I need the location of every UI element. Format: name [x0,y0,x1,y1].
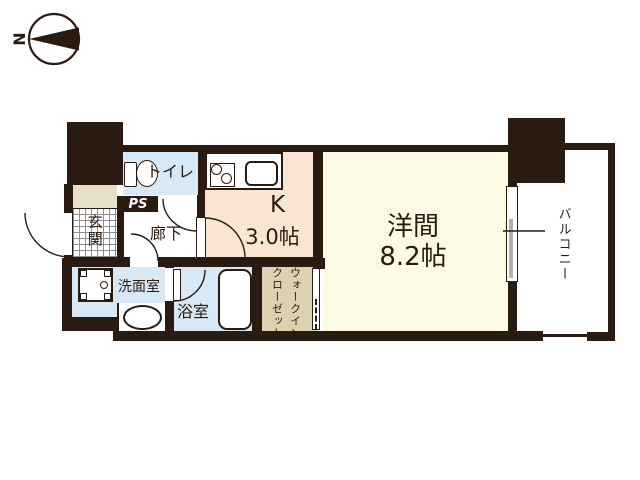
washer-corner-3 [80,293,87,300]
balcony-label: バルコニー [556,207,570,293]
pipe-space-box: PS [118,196,158,212]
kitchen-size-label: 3.0帖 [235,226,310,248]
closet-label-line1: ウォークイン [289,267,301,331]
entrance-door-arc [25,213,69,257]
bathtub [218,269,252,330]
entrance-label: 玄関 [86,214,102,258]
wall-top-left-block [67,122,123,185]
kitchen-label: K [250,193,305,217]
washroom-label: 洗面室 [110,280,168,295]
wall-right-above-window [508,152,517,187]
north-compass: N [0,0,100,80]
kitchen-sink [245,161,278,186]
main-room-label: 洋間 [353,214,473,241]
wall-above-kitchen-door [197,195,205,218]
washer-corner-1 [80,270,87,277]
compass-needle-icon [29,28,79,51]
washroom-door-opening [130,257,158,267]
wall-entrance-left-upper [64,184,73,213]
bathroom-label: 浴室 [172,304,214,321]
wall-balcony-right [608,143,615,341]
floor-plan: PS トイレ 玄関 廊下 K 3.0帖 洋間 8.2帖 洗面室 浴室 ウォークイ… [0,0,640,480]
closet-label-line2: クローゼット [271,267,283,331]
wash-basin [123,305,162,330]
wall-balcony-bottom-corner [587,332,615,341]
stove-burner-1 [211,164,222,175]
wall-bottom-main [113,331,543,341]
main-room-size-label: 8.2帖 [353,244,473,271]
compass-circle [29,14,79,64]
washer-corner-2 [104,270,111,277]
wall-bathroom-closet [252,258,262,331]
hallway-label: 廊下 [136,226,196,243]
wall-top [123,145,508,152]
wall-kitchen-main-room [313,152,323,268]
window-sliding-panel [509,219,513,278]
compass-north-letter: N [10,32,29,45]
bathroom-door-leaf [173,269,181,301]
wall-washroom-left [62,258,72,320]
toilet-label: トイレ [140,164,200,181]
washer-drain-circle [100,281,108,289]
entrance-step [73,184,117,210]
pipe-space-label: PS [129,197,148,212]
wall-hall-bottom [64,257,322,267]
kitchen-door-leaf [196,217,206,258]
stove-burner-2 [221,173,232,184]
counter-step-line [117,303,119,331]
balcony-bottom-rail [543,334,587,337]
closet-door-fold-line [315,299,317,330]
